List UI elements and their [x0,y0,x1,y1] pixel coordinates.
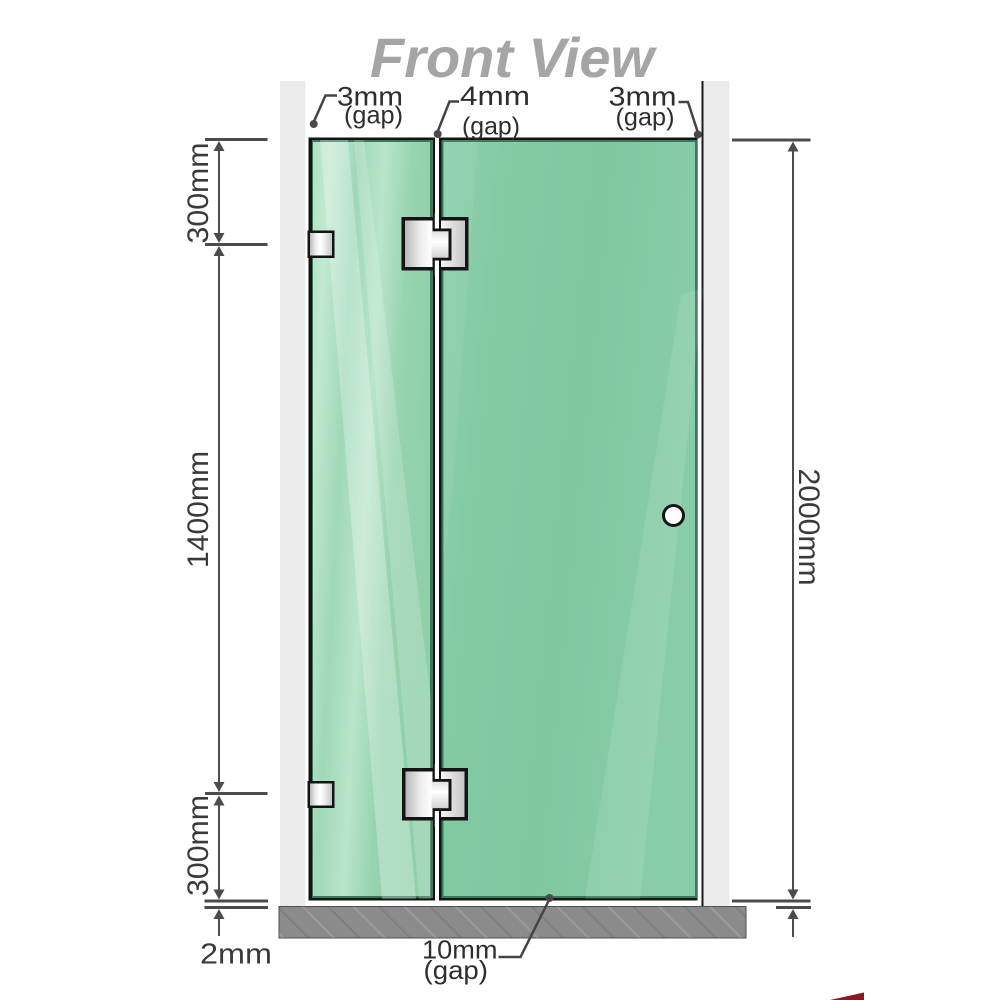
svg-text:1400mm: 1400mm [182,451,215,568]
svg-text:2mm: 2mm [200,939,272,971]
svg-text:(gap): (gap) [616,104,675,132]
svg-text:300mm: 300mm [182,143,215,244]
svg-text:300mm: 300mm [182,795,215,896]
svg-text:4mm: 4mm [460,81,530,111]
svg-text:2000mm: 2000mm [792,469,825,586]
svg-text:Front View: Front View [370,26,657,89]
svg-text:(gap): (gap) [462,113,520,141]
svg-text:(gap): (gap) [344,102,403,130]
svg-text:(gap): (gap) [424,955,489,985]
